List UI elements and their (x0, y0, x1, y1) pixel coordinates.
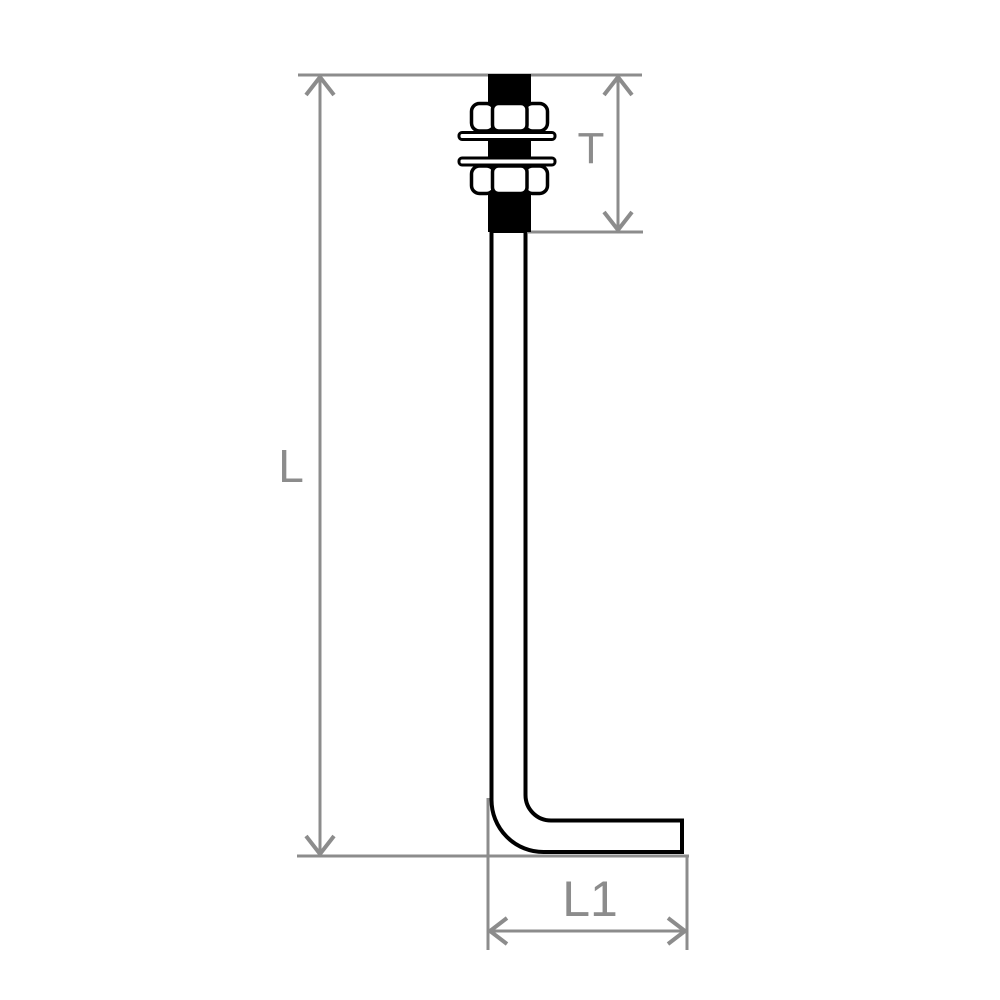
dimension-leg-length: L1 (490, 871, 685, 944)
nut-facet-center (493, 166, 528, 194)
dimension-total-length: L (278, 77, 334, 854)
threaded-section (488, 74, 531, 232)
dimension-label-L: L (278, 440, 304, 492)
anchor-bolt-diagram: L T L1 (0, 0, 1000, 1000)
hex-nut-bottom (472, 166, 548, 194)
bolt-shank (492, 231, 683, 852)
nut-facet-center (493, 104, 528, 132)
washer-top (459, 133, 555, 140)
drawing-canvas: L T L1 (0, 0, 1000, 1000)
dimension-thread-length: T (578, 77, 632, 230)
dimension-label-L1: L1 (562, 871, 618, 927)
anchor-bolt (459, 74, 682, 852)
washer-bottom (459, 158, 555, 165)
dimension-label-T: T (578, 124, 605, 173)
hex-nut-top (472, 104, 548, 132)
